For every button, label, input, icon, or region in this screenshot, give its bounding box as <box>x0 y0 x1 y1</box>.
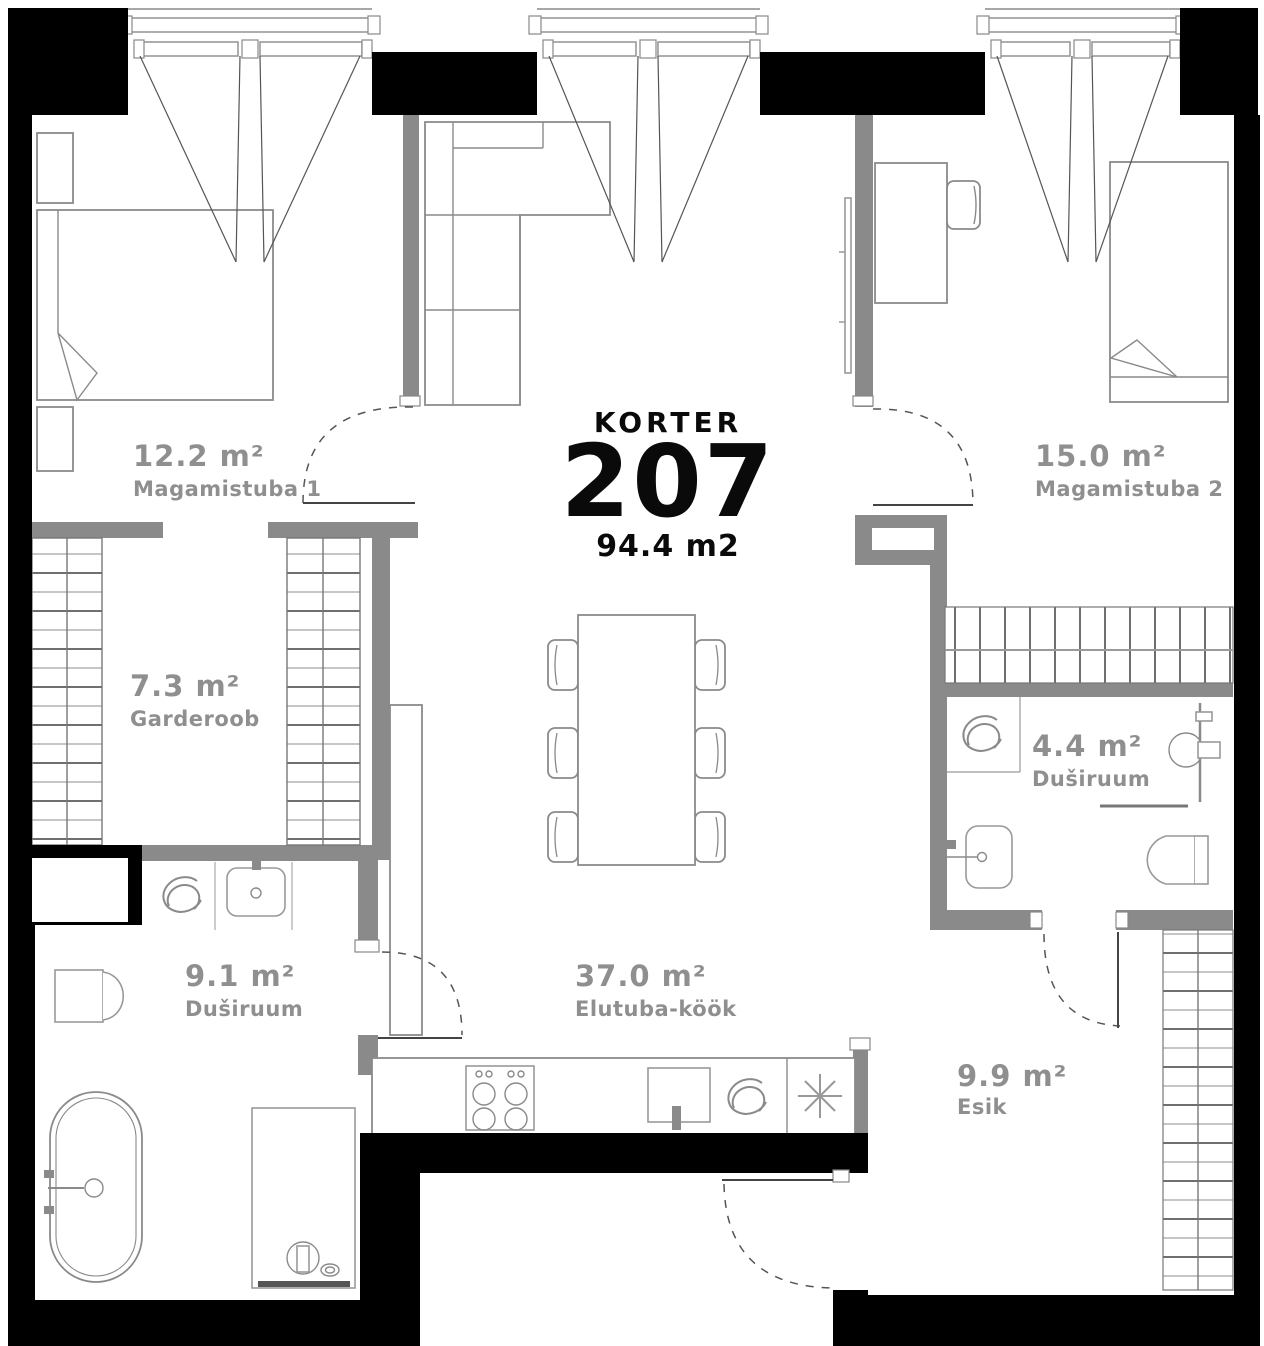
bathtub-icon <box>44 1092 142 1282</box>
single-bed <box>1110 162 1228 402</box>
room-area: 15.0 m² <box>1035 439 1167 473</box>
nightstand <box>37 133 73 203</box>
floor-plan: KORTER 207 94.4 m2 12.2 m² Magamistuba 1… <box>0 0 1264 1346</box>
room-area: 37.0 m² <box>575 959 707 993</box>
esik-closet <box>1163 930 1233 1290</box>
sofa <box>425 122 610 405</box>
room-magamistuba1-label: 12.2 m² Magamistuba 1 <box>133 439 321 501</box>
room-esik-label: 9.9 m² Esik <box>957 1059 1067 1119</box>
room-name: Duširuum <box>1032 767 1150 791</box>
floor-plan-drawing: KORTER 207 94.4 m2 12.2 m² Magamistuba 1… <box>0 0 1264 1346</box>
room-name: Esik <box>957 1095 1008 1119</box>
tv-panel <box>839 198 851 373</box>
dining-set <box>548 615 725 865</box>
room-area: 9.1 m² <box>185 959 295 993</box>
desk <box>875 163 947 303</box>
washing-machine-icon <box>963 716 1001 751</box>
room-name: Magamistuba 2 <box>1035 477 1223 501</box>
room-name: Duširuum <box>185 997 303 1021</box>
bathroom2-fixtures <box>946 697 1220 888</box>
title-block: KORTER 207 94.4 m2 <box>561 406 776 564</box>
room-elutuba-label: 37.0 m² Elutuba-köök <box>575 959 737 1021</box>
garderoob-closet-right <box>287 538 360 845</box>
room-area: 4.4 m² <box>1032 729 1142 763</box>
kitchen-tall-unit <box>390 705 422 1035</box>
garderoob-closet-left <box>32 538 102 845</box>
apartment-number: 207 <box>561 423 776 540</box>
room-name: Garderoob <box>130 707 260 731</box>
room-area: 9.9 m² <box>957 1059 1067 1093</box>
dining-table <box>578 615 695 865</box>
door-bedroom2 <box>853 396 973 505</box>
nightstand <box>37 407 73 471</box>
bedroom2-furniture <box>875 162 1228 402</box>
door-entry <box>722 1170 849 1288</box>
toilet-icon <box>1147 836 1208 884</box>
total-area: 94.4 m2 <box>596 529 740 564</box>
room-dushiruum2-label: 4.4 m² Duširuum <box>1032 729 1150 791</box>
room-dushiruum1-label: 9.1 m² Duširuum <box>185 959 303 1021</box>
double-bed <box>37 210 273 400</box>
toilet-icon <box>55 970 123 1022</box>
sink-icon <box>946 826 1012 888</box>
kitchen-sink-icon <box>648 1068 710 1130</box>
stove-icon <box>466 1066 534 1130</box>
shaft <box>32 858 128 922</box>
room-garderoob-label: 7.3 m² Garderoob <box>130 669 260 731</box>
hall-closet-top <box>945 607 1233 683</box>
room-area: 7.3 m² <box>130 669 240 703</box>
room-area: 12.2 m² <box>133 439 265 473</box>
door-bathroom1 <box>355 940 870 1050</box>
room-magamistuba2-label: 15.0 m² Magamistuba 2 <box>1035 439 1223 501</box>
door-bathroom2 <box>1030 912 1128 1028</box>
room-name: Magamistuba 1 <box>133 477 321 501</box>
sink-icon <box>227 854 285 916</box>
room-name: Elutuba-köök <box>575 997 737 1021</box>
shower-icon <box>252 1108 355 1288</box>
washing-machine-icon <box>163 877 201 912</box>
